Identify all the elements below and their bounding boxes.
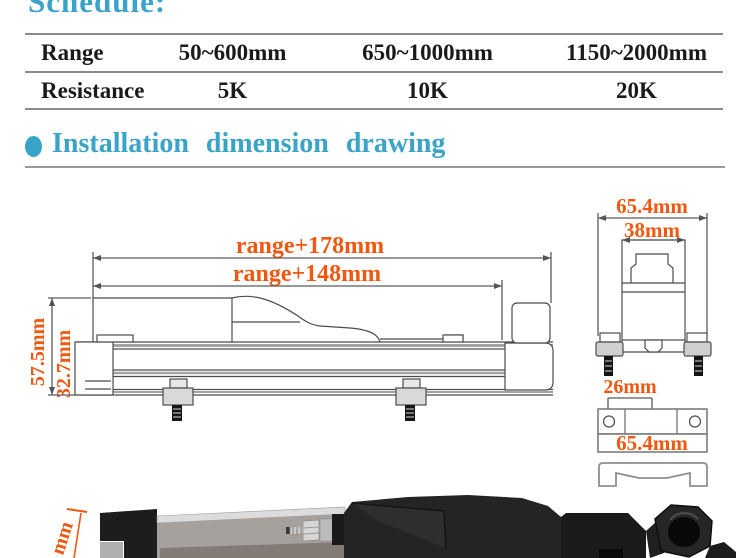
bracket-drawing: 26mm 65.4mm [598,376,707,486]
schedule-heading: Schedule: [28,0,166,17]
resistance-value-2: 10K [305,78,550,104]
dim-label-hole-offset: 26mm [603,376,657,398]
end-view-drawing: 65.4mm 38mm [596,194,711,376]
dim-label-body-width: 38mm [624,218,680,242]
range-value-1: 50~600mm [160,40,305,66]
range-value-3: 1150~2000mm [550,40,723,66]
connector-block [512,303,550,343]
product-spec-page: Schedule: Range 50~600mm 650~1000mm 1150… [0,0,750,558]
dim-label-bracket-length: 65.4mm [616,431,688,455]
spec-table: Range 50~600mm 650~1000mm 1150~2000mm Re… [25,33,723,110]
range-value-2: 650~1000mm [305,40,550,66]
table-row-range: Range 50~600mm 650~1000mm 1150~2000mm [25,35,723,73]
side-view-drawing: range+178mm range+148mm 57.5mm 32.7mm [27,233,553,421]
dim-label-body-length: range+148mm [233,261,381,287]
photo-dim-label: mm [47,519,78,558]
resistance-value-1: 5K [160,78,305,104]
mounting-bracket-right [396,379,426,421]
dim-label-overall-width: 65.4mm [616,194,688,218]
dim-label-rail-height: 32.7mm [53,330,75,399]
resistance-value-3: 20K [550,78,723,104]
section-divider [25,166,725,168]
row-label: Range [25,40,160,66]
photo-connector-nut [655,505,736,558]
product-photo: mm [47,495,736,558]
installation-heading: Installation dimension drawing [52,128,445,160]
dim-label-total-length: range+178mm [236,233,384,259]
mounting-bracket-left [163,379,193,421]
row-label: Resistance [25,78,160,104]
table-row-resistance: Resistance 5K 10K 20K [25,73,723,108]
dim-label-total-height: 57.5mm [27,318,49,387]
rail-profile [76,342,553,395]
installation-dimension-drawing: range+178mm range+148mm 57.5mm 32.7mm [0,170,750,558]
bullet-icon [25,136,42,157]
clip-profile [599,463,707,486]
